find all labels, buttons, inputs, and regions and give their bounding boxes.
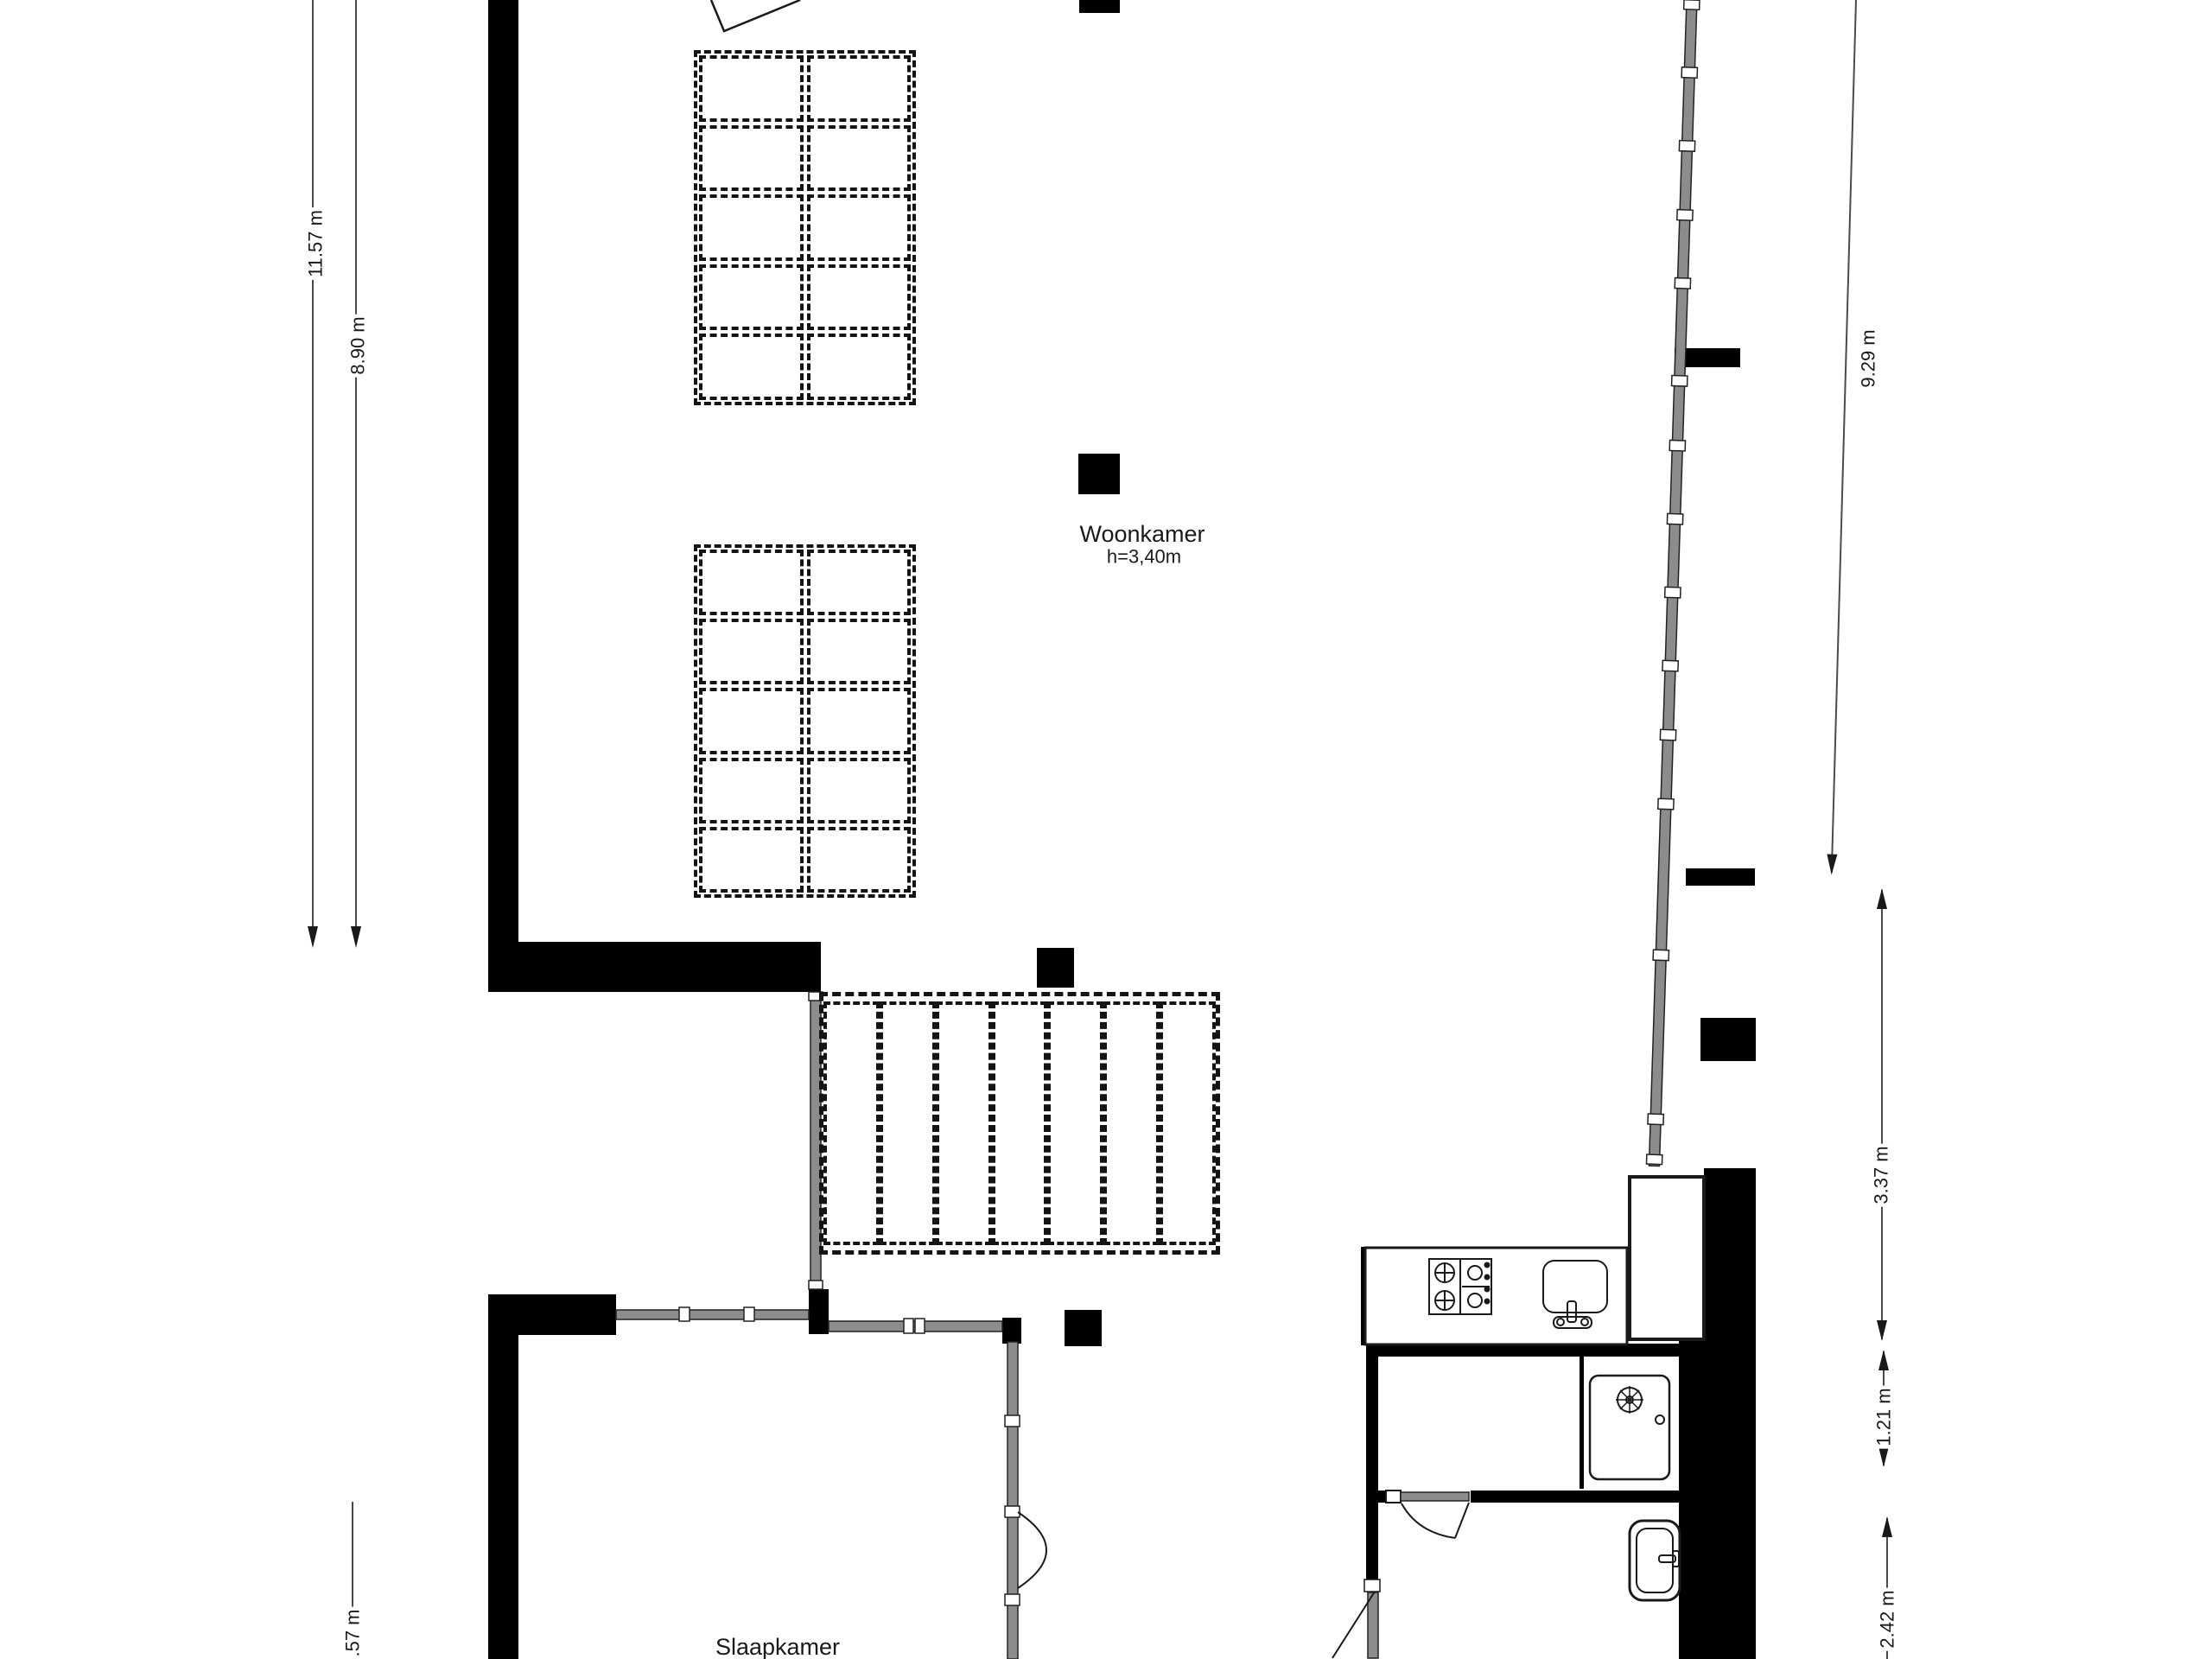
kitchen-counter xyxy=(1365,1248,1627,1344)
dim-label-right-3: 1.21 m xyxy=(1873,1385,1893,1448)
skylight-cell xyxy=(807,758,912,823)
column-1 xyxy=(1079,0,1120,13)
door-gap-bath-left xyxy=(1364,1580,1380,1592)
door-leaf-bath-inner xyxy=(1401,1492,1469,1501)
dim-label-right-1: 9.29 m xyxy=(1858,327,1878,390)
door-swing-bath-inner xyxy=(1402,1503,1469,1538)
wall-block-2 xyxy=(1686,868,1755,886)
louvre-slat xyxy=(823,1001,880,1245)
skylight-cell xyxy=(699,194,804,261)
room-label-woonkamer: Woonkamer xyxy=(1079,522,1205,546)
column-3 xyxy=(1037,948,1074,988)
dim-label-right-4: 2.42 m xyxy=(1877,1587,1897,1650)
dim-label-right-2: 3.37 m xyxy=(1871,1143,1891,1206)
floorplan-canvas: Woonkamer h=3,40m Slaapkamer 11.57 m 8.9… xyxy=(0,0,2212,1659)
skylight-cell xyxy=(807,194,912,261)
skylight-cell xyxy=(699,827,804,893)
skylight-cell xyxy=(699,758,804,823)
skylight-grid-upper xyxy=(694,50,916,405)
skylight-cell xyxy=(807,550,912,615)
kitchen-tall-unit xyxy=(1630,1177,1704,1339)
dim-label-bottom-left: .57 m xyxy=(342,1606,362,1659)
skylight-cell xyxy=(807,125,912,192)
skylight-cell xyxy=(699,55,804,122)
skylight-cell xyxy=(699,688,804,753)
dim-label-left-outer: 11.57 m xyxy=(305,207,325,280)
skylight-cell xyxy=(807,688,912,753)
wall-bedroom-left xyxy=(488,1294,616,1659)
room-height-woonkamer: h=3,40m xyxy=(1107,546,1181,566)
skylight-grid-lower xyxy=(694,544,916,898)
skylight-cell xyxy=(699,334,804,400)
skylight-cell xyxy=(699,619,804,684)
louvre-slat xyxy=(936,1001,992,1245)
skylight-cell xyxy=(699,125,804,192)
dimension-lines xyxy=(308,0,1892,1659)
door-swing-top xyxy=(711,0,800,31)
wall-post-bedroom-corner xyxy=(1002,1318,1021,1344)
window-bedroom-1 xyxy=(616,1310,809,1319)
glass-wall-bedroom-right xyxy=(1007,1342,1018,1659)
column-4 xyxy=(1065,1310,1102,1346)
wall-bath-left xyxy=(1366,1357,1378,1581)
wall-shower-divider xyxy=(1580,1357,1584,1489)
louvre-slat xyxy=(992,1001,1048,1245)
louvre-array xyxy=(819,992,1220,1255)
skylight-cell xyxy=(807,264,912,331)
skylight-cell xyxy=(807,619,912,684)
shower-icon xyxy=(1590,1376,1669,1479)
door-hinge-plate xyxy=(1386,1491,1401,1503)
skylight-cell xyxy=(699,550,804,615)
skylight-cell xyxy=(807,55,912,122)
louvre-slat xyxy=(1160,1001,1216,1245)
louvre-slat xyxy=(880,1001,936,1245)
wall-block-3 xyxy=(1700,1018,1756,1061)
fixtures xyxy=(1365,1177,1704,1600)
louvre-slat xyxy=(1047,1001,1103,1245)
skylight-cell xyxy=(699,264,804,331)
door-swing-bedroom xyxy=(1018,1512,1046,1588)
dim-label-left-inner: 8.90 m xyxy=(347,314,367,377)
room-label-slaapkamer: Slaapkamer xyxy=(715,1635,840,1659)
window-wall-right xyxy=(1646,0,1700,1166)
washbasin-icon xyxy=(1630,1521,1680,1600)
column-2 xyxy=(1078,454,1120,494)
door-leaf-bath-left xyxy=(1368,1592,1378,1658)
louvre-slat xyxy=(1103,1001,1160,1245)
skylight-cell xyxy=(807,827,912,893)
wall-post-bedroom xyxy=(809,1289,829,1334)
skylight-cell xyxy=(807,334,912,400)
walls xyxy=(488,0,1756,1659)
